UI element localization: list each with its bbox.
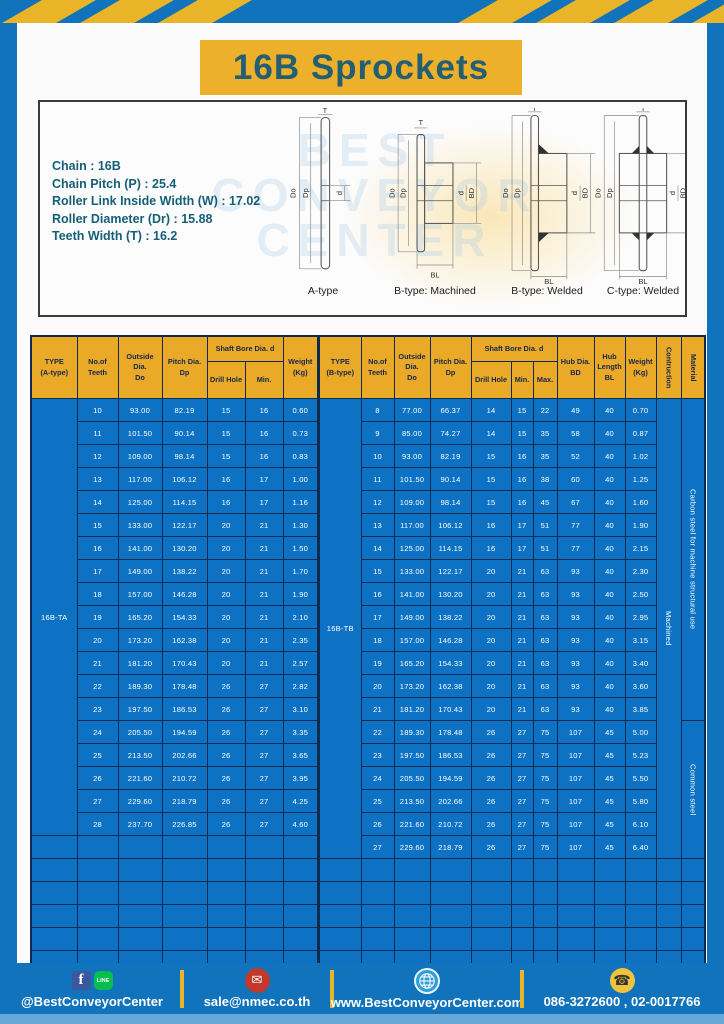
table-cell: 107: [557, 721, 594, 744]
stripe-decoration: [2, 0, 96, 23]
table-cell: 15: [471, 468, 511, 491]
empty-cell: [681, 882, 705, 905]
table-cell: 26: [471, 744, 511, 767]
table-row: 13117.00106.1216175177401.90: [319, 514, 705, 537]
empty-cell: [681, 859, 705, 882]
table-cell: 178.48: [430, 721, 471, 744]
table-cell: 63: [533, 675, 557, 698]
table-cell: 16: [207, 491, 245, 514]
table-cell: 146.28: [162, 583, 207, 606]
table-cell: 1.50: [283, 537, 318, 560]
empty-cell: [625, 882, 656, 905]
col-header-construction: Contruction: [656, 336, 681, 399]
table-row: 21181.20170.4320216393403.85: [319, 698, 705, 721]
table-cell: 18: [77, 583, 118, 606]
table-cell: 77: [557, 537, 594, 560]
col-header-shaft-bore: Shaft Bore Dia. d: [471, 336, 557, 362]
table-cell: 90.14: [162, 422, 207, 445]
table-cell: 27: [511, 836, 533, 859]
stripe-decoration: [536, 0, 630, 23]
table-cell: 20: [207, 652, 245, 675]
empty-cell: [625, 859, 656, 882]
empty-cell: [77, 928, 118, 951]
table-cell: 16: [511, 445, 533, 468]
table-cell: 197.50: [394, 744, 430, 767]
table-cell: 229.60: [118, 790, 162, 813]
empty-cell: [471, 882, 511, 905]
table-cell: 20: [471, 675, 511, 698]
table-cell: 125.00: [118, 491, 162, 514]
table-cell: 221.60: [118, 767, 162, 790]
table-cell: 40: [594, 560, 625, 583]
table-cell: 21: [77, 652, 118, 675]
table-cell: 25: [77, 744, 118, 767]
table-row: 23197.50186.53262775107455.23: [319, 744, 705, 767]
table-cell: 85.00: [394, 422, 430, 445]
table-cell: 3.65: [283, 744, 318, 767]
col-header-outside-dia: Outside Dia. Do: [394, 336, 430, 399]
table-cell: 45: [594, 813, 625, 836]
empty-cell: [557, 882, 594, 905]
empty-cell: [511, 928, 533, 951]
table-cell: 154.33: [430, 652, 471, 675]
empty-cell: [557, 928, 594, 951]
table-cell: 125.00: [394, 537, 430, 560]
social-icons: f LINE: [72, 969, 113, 993]
col-header-hub-dia: Hub Dia. BD: [557, 336, 594, 399]
table-cell: 17: [245, 468, 283, 491]
empty-cell: [656, 882, 681, 905]
table-row: 24205.50194.59262775107455.50: [319, 767, 705, 790]
empty-cell: [511, 905, 533, 928]
table-cell: 3.85: [625, 698, 656, 721]
table-cell: 15: [361, 560, 394, 583]
table-cell: 218.79: [162, 790, 207, 813]
table-cell: 130.20: [162, 537, 207, 560]
table-cell: 75: [533, 721, 557, 744]
table-cell: 27: [245, 813, 283, 836]
table-cell: 17: [511, 514, 533, 537]
empty-cell: [245, 859, 283, 882]
table-cell: 20: [361, 675, 394, 698]
table-cell: 24: [361, 767, 394, 790]
empty-cell: [361, 859, 394, 882]
table-row: [319, 882, 705, 905]
table-cell: 12: [361, 491, 394, 514]
table-cell: 19: [77, 606, 118, 629]
table-cell: 117.00: [118, 468, 162, 491]
col-header-pitch-dia: Pitch Dia. Dp: [430, 336, 471, 399]
diagram-caption: C-type: Welded: [588, 285, 687, 297]
table-cell: 20: [471, 652, 511, 675]
empty-cell: [118, 928, 162, 951]
empty-cell: [430, 882, 471, 905]
material-cell: Carbon steel for machine structural use: [681, 399, 705, 721]
col-header-max: Max.: [533, 362, 557, 399]
table-cell: 93.00: [118, 399, 162, 422]
table-cell: 186.53: [430, 744, 471, 767]
table-cell: 40: [594, 468, 625, 491]
empty-cell: [319, 905, 361, 928]
diagram-b-welded: T Do Dp d BD BL B-type: Welded: [492, 108, 602, 297]
table-cell: 26: [207, 767, 245, 790]
table-cell: 77: [557, 514, 594, 537]
table-cell: 221.60: [394, 813, 430, 836]
table-cell: 21: [245, 560, 283, 583]
table-cell: 75: [533, 813, 557, 836]
dim-label-t: T: [419, 118, 424, 127]
table-cell: 27: [245, 790, 283, 813]
table-cell: 58: [557, 422, 594, 445]
table-cell: 63: [533, 629, 557, 652]
dim-label-do: Do: [593, 188, 602, 198]
empty-cell: [430, 905, 471, 928]
empty-cell: [656, 859, 681, 882]
table-cell: 21: [245, 652, 283, 675]
table-a-body: 16B-TA1093.0082.1915160.6011101.5090.141…: [31, 399, 318, 975]
table-cell: 21: [245, 514, 283, 537]
table-cell: 27: [245, 767, 283, 790]
empty-cell: [31, 836, 77, 859]
table-cell: 162.38: [430, 675, 471, 698]
table-cell: 107: [557, 767, 594, 790]
empty-cell: [625, 905, 656, 928]
phone-numbers[interactable]: 086-3272600 , 02-0017766: [544, 994, 701, 1009]
table-cell: 17: [511, 537, 533, 560]
table-cell: 52: [557, 445, 594, 468]
table-cell: 26: [471, 813, 511, 836]
empty-cell: [283, 905, 318, 928]
table-cell: 229.60: [394, 836, 430, 859]
table-cell: 14: [471, 422, 511, 445]
empty-cell: [207, 882, 245, 905]
table-cell: 38: [533, 468, 557, 491]
table-cell: 213.50: [394, 790, 430, 813]
table-cell: 17: [77, 560, 118, 583]
empty-cell: [283, 859, 318, 882]
table-cell: 21: [511, 652, 533, 675]
table-cell: 122.17: [162, 514, 207, 537]
table-cell: 24: [77, 721, 118, 744]
empty-cell: [533, 859, 557, 882]
table-cell: 13: [77, 468, 118, 491]
col-header-shaft-bore: Shaft Bore Dia. d: [207, 336, 283, 362]
table-cell: 51: [533, 537, 557, 560]
table-cell: 20: [207, 560, 245, 583]
table-cell: 45: [594, 767, 625, 790]
table-cell: 165.20: [118, 606, 162, 629]
construction-cell: Machined: [656, 399, 681, 859]
table-cell: 16: [511, 468, 533, 491]
table-cell: 2.82: [283, 675, 318, 698]
table-cell: 66.37: [430, 399, 471, 422]
dim-label-dp: Dp: [301, 188, 310, 198]
empty-cell: [319, 859, 361, 882]
empty-cell: [656, 905, 681, 928]
table-cell: 27: [511, 767, 533, 790]
table-cell: 205.50: [118, 721, 162, 744]
table-cell: 45: [594, 744, 625, 767]
table-cell: 162.38: [162, 629, 207, 652]
table-cell: 3.40: [625, 652, 656, 675]
table-cell: 26: [207, 813, 245, 836]
dim-label-dp: Dp: [605, 188, 614, 198]
table-cell: 93: [557, 698, 594, 721]
table-cell: 20: [471, 583, 511, 606]
table-cell: 26: [207, 744, 245, 767]
table-cell: 107: [557, 790, 594, 813]
table-row: 11101.5090.1415163860401.25: [319, 468, 705, 491]
dim-label-bl: BL: [430, 270, 439, 279]
table-row: 985.0074.2714153558400.87: [319, 422, 705, 445]
table-cell: 2.30: [625, 560, 656, 583]
table-cell: 11: [77, 422, 118, 445]
table-row: 20173.20162.3820216393403.60: [319, 675, 705, 698]
table-cell: 16: [471, 514, 511, 537]
table-cell: 186.53: [162, 698, 207, 721]
empty-cell: [394, 905, 430, 928]
empty-cell: [162, 928, 207, 951]
empty-cell: [533, 928, 557, 951]
table-cell: 25: [361, 790, 394, 813]
empty-cell: [118, 836, 162, 859]
table-cell: 202.66: [162, 744, 207, 767]
table-cell: 27: [361, 836, 394, 859]
table-cell: 141.00: [394, 583, 430, 606]
table-cell: 1.70: [283, 560, 318, 583]
table-cell: 26: [207, 721, 245, 744]
table-cell: 15: [207, 399, 245, 422]
sprocket-drawing-a: T Do Dp d: [271, 108, 375, 284]
table-row: [319, 859, 705, 882]
table-cell: 21: [511, 606, 533, 629]
table-cell: 133.00: [394, 560, 430, 583]
table-cell: 26: [77, 767, 118, 790]
table-cell: 15: [77, 514, 118, 537]
table-cell: 10: [361, 445, 394, 468]
diagram-caption: B-type: Welded: [492, 285, 602, 297]
table-cell: 16: [245, 399, 283, 422]
table-cell: 22: [533, 399, 557, 422]
table-cell: 157.00: [118, 583, 162, 606]
empty-cell: [361, 905, 394, 928]
table-cell: 93: [557, 606, 594, 629]
empty-cell: [511, 882, 533, 905]
table-cell: 40: [594, 514, 625, 537]
page-title: 16B Sprockets: [200, 40, 522, 95]
table-cell: 5.00: [625, 721, 656, 744]
table-cell: 109.00: [118, 445, 162, 468]
table-cell: 130.20: [430, 583, 471, 606]
empty-cell: [31, 882, 77, 905]
table-cell: 101.50: [118, 422, 162, 445]
table-cell: 20: [207, 583, 245, 606]
dim-label-t: T: [641, 108, 646, 113]
table-cell: 82.19: [430, 445, 471, 468]
table-cell: 189.30: [394, 721, 430, 744]
table-cell: 21: [245, 583, 283, 606]
spec-line-chain: Chain : 16B: [52, 158, 260, 176]
table-cell: 40: [594, 698, 625, 721]
table-cell: 15: [207, 422, 245, 445]
table-cell: 21: [511, 698, 533, 721]
table-cell: 2.50: [625, 583, 656, 606]
table-cell: 49: [557, 399, 594, 422]
table-cell: 109.00: [394, 491, 430, 514]
col-header-teeth: No.of Teeth: [361, 336, 394, 399]
table-cell: 75: [533, 744, 557, 767]
website-url[interactable]: www.BestConveyorCenter.com: [331, 995, 523, 1010]
spec-line-teeth-width: Teeth Width (T) : 16.2: [52, 228, 260, 246]
table-cell: 2.15: [625, 537, 656, 560]
stripe-decoration: [614, 0, 708, 23]
table-cell: 106.12: [162, 468, 207, 491]
table-cell: 21: [511, 675, 533, 698]
stripe-decoration: [80, 0, 174, 23]
table-cell: 27: [245, 675, 283, 698]
table-cell: 237.70: [118, 813, 162, 836]
table-cell: 1.60: [625, 491, 656, 514]
table-cell: 75: [533, 767, 557, 790]
table-cell: 40: [594, 422, 625, 445]
table-cell: 40: [594, 675, 625, 698]
table-cell: 26: [471, 721, 511, 744]
dim-label-d: d: [668, 191, 677, 195]
table-cell: 40: [594, 583, 625, 606]
table-cell: 0.83: [283, 445, 318, 468]
table-cell: 16: [361, 583, 394, 606]
dim-label-bd: BD: [679, 187, 687, 198]
table-cell: 27: [245, 721, 283, 744]
social-handle[interactable]: @BestConveyorCenter: [21, 994, 163, 1009]
empty-cell: [361, 882, 394, 905]
table-cell: 5.23: [625, 744, 656, 767]
table-cell: 3.60: [625, 675, 656, 698]
table-cell: 74.27: [430, 422, 471, 445]
sprocket-drawing-b-welded: T Do Dp d BD BL: [495, 108, 599, 284]
line-icon: LINE: [94, 971, 113, 990]
table-cell: 21: [511, 629, 533, 652]
table-cell: 4.60: [283, 813, 318, 836]
table-cell: 4.25: [283, 790, 318, 813]
table-cell: 20: [77, 629, 118, 652]
table-cell: 63: [533, 698, 557, 721]
empty-cell: [430, 928, 471, 951]
table-cell: 20: [207, 606, 245, 629]
footer-phone-group: ☎ 086-3272600 , 02-0017766: [524, 968, 720, 1009]
table-a-header: TYPE (A-type) No.of Teeth Outside Dia. D…: [31, 336, 318, 399]
table-cell: 14: [361, 537, 394, 560]
table-cell: 13: [361, 514, 394, 537]
table-cell: 1.90: [625, 514, 656, 537]
table-row: 17149.00138.2220216393402.95: [319, 606, 705, 629]
table-cell: 101.50: [394, 468, 430, 491]
empty-cell: [394, 928, 430, 951]
table-cell: 60: [557, 468, 594, 491]
table-cell: 45: [594, 721, 625, 744]
dim-label-do: Do: [501, 188, 510, 198]
table-cell: 141.00: [118, 537, 162, 560]
col-header-material: Material: [681, 336, 705, 399]
table-cell: 45: [594, 836, 625, 859]
table-cell: 5.80: [625, 790, 656, 813]
globe-icon: [414, 968, 440, 994]
table-cell: 12: [77, 445, 118, 468]
table-row: 26221.60210.72262775107456.10: [319, 813, 705, 836]
stripe-decoration: [458, 0, 552, 23]
table-cell: 90.14: [430, 468, 471, 491]
dim-label-d: d: [456, 191, 465, 195]
table-cell: 117.00: [394, 514, 430, 537]
material-cell: Common steel: [681, 721, 705, 859]
table-cell: 170.43: [430, 698, 471, 721]
dim-label-bd: BD: [467, 187, 476, 198]
table-cell: 107: [557, 744, 594, 767]
empty-cell: [245, 836, 283, 859]
spec-line-pitch: Chain Pitch (P) : 25.4: [52, 176, 260, 194]
empty-cell: [245, 905, 283, 928]
table-cell: 165.20: [394, 652, 430, 675]
table-cell: 16: [511, 491, 533, 514]
table-row: [31, 928, 318, 951]
empty-cell: [283, 836, 318, 859]
table-cell: 40: [594, 629, 625, 652]
table-b-body: 16B-TB877.0066.3714152249400.70MachinedC…: [319, 399, 705, 975]
col-header-min: Min.: [245, 362, 283, 399]
empty-cell: [394, 859, 430, 882]
table-cell: 14: [77, 491, 118, 514]
email-icon: ✉: [245, 968, 270, 993]
table-cell: 35: [533, 445, 557, 468]
col-header-min: Min.: [511, 362, 533, 399]
empty-cell: [118, 859, 162, 882]
sprocket-drawing-b-machined: T Do Dp d BD BL: [383, 108, 487, 284]
table-cell: 16: [245, 422, 283, 445]
table-cell: 40: [594, 652, 625, 675]
table-cell: 67: [557, 491, 594, 514]
empty-cell: [594, 928, 625, 951]
table-cell: 0.70: [625, 399, 656, 422]
table-cell: 26: [471, 767, 511, 790]
table-cell: 63: [533, 606, 557, 629]
table-cell: 5.50: [625, 767, 656, 790]
table-cell: 194.59: [162, 721, 207, 744]
table-cell: 23: [361, 744, 394, 767]
empty-cell: [471, 928, 511, 951]
table-cell: 194.59: [430, 767, 471, 790]
empty-cell: [207, 928, 245, 951]
table-cell: 2.95: [625, 606, 656, 629]
table-cell: 170.43: [162, 652, 207, 675]
dim-label-dp: Dp: [399, 188, 408, 198]
diagram-b-machined: T Do Dp d BD BL B-type: Machined: [380, 108, 490, 297]
table-cell: 20: [207, 629, 245, 652]
email-address[interactable]: sale@nmec.co.th: [204, 994, 311, 1009]
empty-cell: [77, 882, 118, 905]
table-row: 12109.0098.1415164567401.60: [319, 491, 705, 514]
table-cell: 93: [557, 629, 594, 652]
table-cell: 107: [557, 813, 594, 836]
table-cell: 0.87: [625, 422, 656, 445]
stripe-decoration: [158, 0, 252, 23]
table-cell: 1.90: [283, 583, 318, 606]
empty-cell: [681, 928, 705, 951]
empty-cell: [361, 928, 394, 951]
table-cell: 149.00: [394, 606, 430, 629]
col-header-outside-dia: Outside Dia. Do: [118, 336, 162, 399]
table-cell: 63: [533, 560, 557, 583]
empty-cell: [162, 882, 207, 905]
